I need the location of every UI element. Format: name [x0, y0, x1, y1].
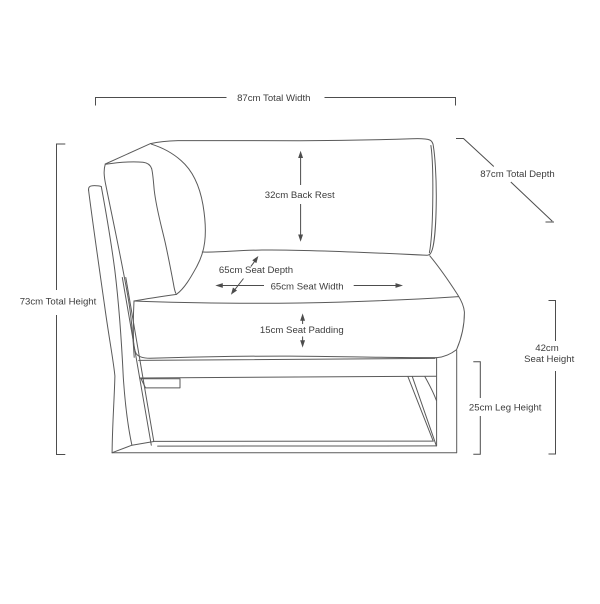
- svg-text:25cm Leg Height: 25cm Leg Height: [469, 402, 542, 413]
- svg-text:65cm Seat Width: 65cm Seat Width: [271, 282, 344, 293]
- svg-text:15cm Seat Padding: 15cm Seat Padding: [260, 325, 344, 336]
- svg-text:87cm Total Depth: 87cm Total Depth: [480, 169, 554, 180]
- svg-text:42cm: 42cm: [535, 343, 558, 354]
- svg-text:87cm Total Width: 87cm Total Width: [237, 93, 310, 104]
- svg-text:32cm Back Rest: 32cm Back Rest: [265, 190, 335, 201]
- svg-text:Seat Height: Seat Height: [524, 354, 574, 365]
- svg-text:65cm Seat Depth: 65cm Seat Depth: [219, 265, 293, 276]
- svg-text:73cm Total Height: 73cm Total Height: [20, 297, 97, 308]
